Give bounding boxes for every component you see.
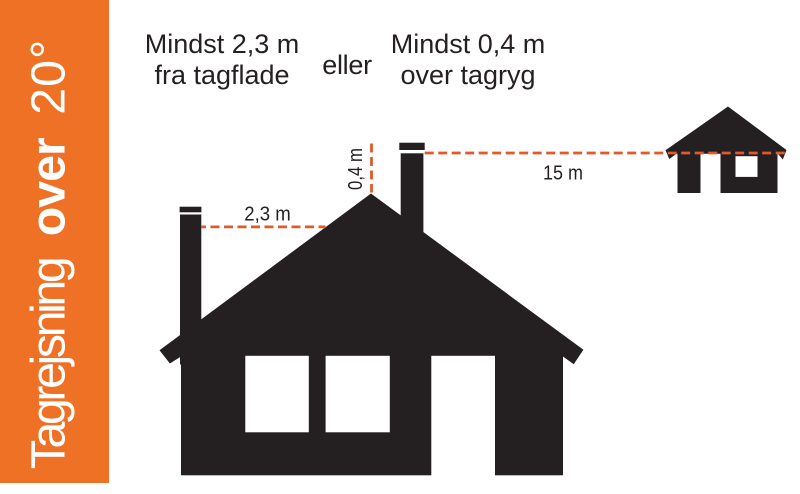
svg-text:0,4 m: 0,4 m <box>344 148 367 190</box>
svg-text:15 m: 15 m <box>543 161 583 184</box>
svg-text:2,3 m: 2,3 m <box>244 202 291 225</box>
